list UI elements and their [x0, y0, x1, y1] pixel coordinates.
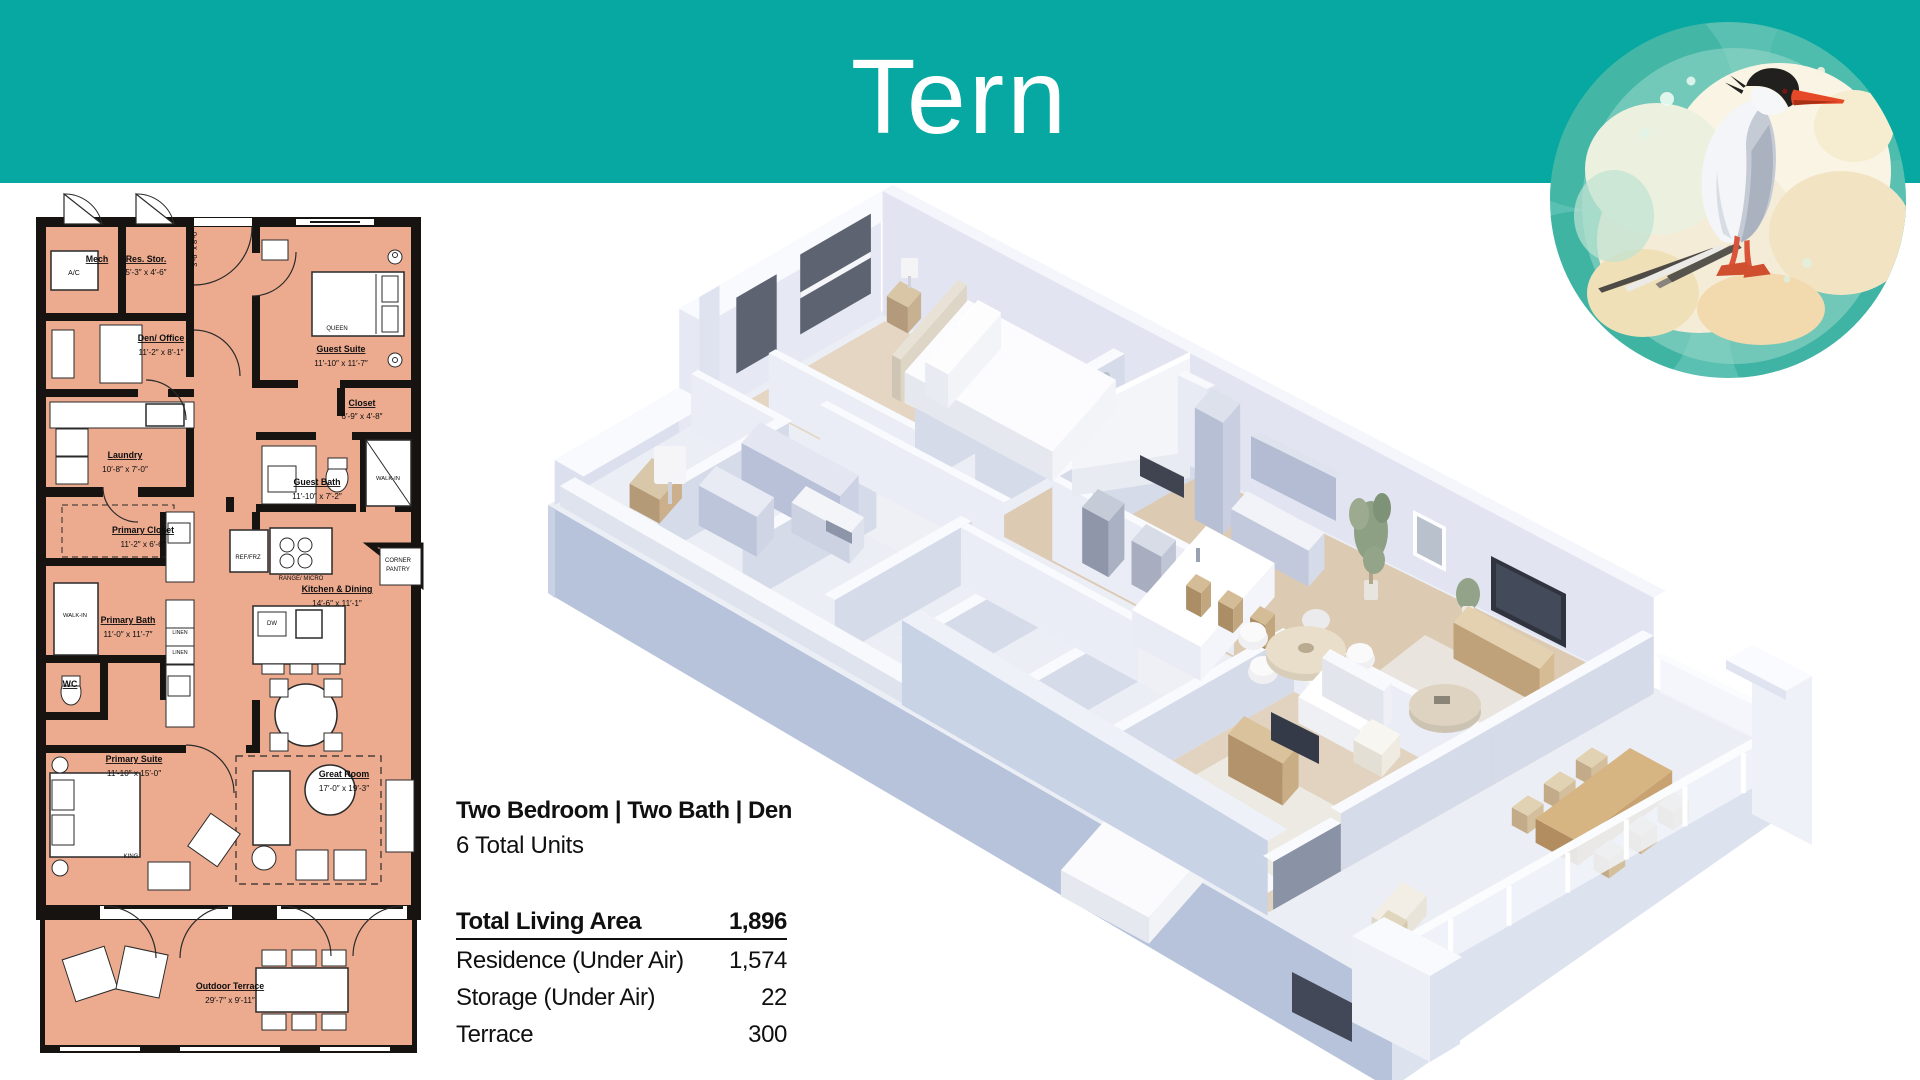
svg-text:CORNER: CORNER [385, 558, 412, 564]
svg-text:11′-10″ x 15′-0″: 11′-10″ x 15′-0″ [107, 769, 161, 778]
svg-text:17′-0″ x 19′-3″: 17′-0″ x 19′-3″ [319, 784, 369, 793]
svg-text:WALK-IN: WALK-IN [63, 613, 87, 619]
svg-text:3′-6″ x 8′-0″: 3′-6″ x 8′-0″ [190, 229, 199, 267]
svg-text:A/C: A/C [68, 270, 80, 277]
svg-text:14′-6″ x 11′-1″: 14′-6″ x 11′-1″ [312, 599, 362, 608]
svg-text:Guest Bath: Guest Bath [294, 477, 341, 487]
svg-text:29′-7″ x 9′-11″: 29′-7″ x 9′-11″ [205, 996, 255, 1005]
svg-text:Great Room: Great Room [319, 769, 370, 779]
svg-text:WALK-IN: WALK-IN [376, 476, 400, 482]
svg-text:RANGE/ MICRO: RANGE/ MICRO [279, 576, 324, 582]
svg-text:Primary Closet: Primary Closet [112, 525, 174, 535]
svg-text:Outdoor Terrace: Outdoor Terrace [196, 981, 264, 991]
svg-text:PANTRY: PANTRY [386, 567, 410, 573]
svg-text:REF/FRZ: REF/FRZ [235, 555, 261, 561]
svg-text:11′-10″ x 7′-2″: 11′-10″ x 7′-2″ [292, 492, 342, 501]
svg-text:WC: WC [63, 679, 78, 689]
svg-text:Primary Bath: Primary Bath [101, 615, 156, 625]
svg-text:Kitchen & Dining: Kitchen & Dining [302, 584, 373, 594]
svg-text:DW: DW [267, 621, 277, 627]
svg-text:Mech: Mech [86, 254, 109, 264]
svg-text:Res. Stor.: Res. Stor. [126, 254, 167, 264]
svg-text:Primary Suite: Primary Suite [106, 754, 163, 764]
svg-text:QUEEN: QUEEN [326, 326, 347, 332]
svg-text:10′-8″ x 7′-0″: 10′-8″ x 7′-0″ [102, 465, 148, 474]
svg-text:11′-2″ x 6′-6″: 11′-2″ x 6′-6″ [120, 540, 165, 549]
svg-text:11′-0″ x 11′-7″: 11′-0″ x 11′-7″ [103, 630, 152, 639]
svg-text:11′-2″ x 8′-1″: 11′-2″ x 8′-1″ [138, 348, 183, 357]
svg-text:KING: KING [124, 854, 139, 860]
svg-text:Closet: Closet [349, 398, 376, 408]
svg-text:5′-3″ x 4′-6″: 5′-3″ x 4′-6″ [125, 268, 166, 277]
svg-text:Laundry: Laundry [108, 450, 143, 460]
svg-text:11′-10″ x 11′-7″: 11′-10″ x 11′-7″ [314, 359, 368, 368]
svg-text:Den/ Office: Den/ Office [138, 333, 185, 343]
svg-text:LINEN: LINEN [172, 630, 188, 636]
svg-text:LINEN: LINEN [172, 650, 188, 656]
svg-text:Guest Suite: Guest Suite [317, 344, 366, 354]
svg-text:6′-9″ x 4′-8″: 6′-9″ x 4′-8″ [341, 412, 382, 421]
